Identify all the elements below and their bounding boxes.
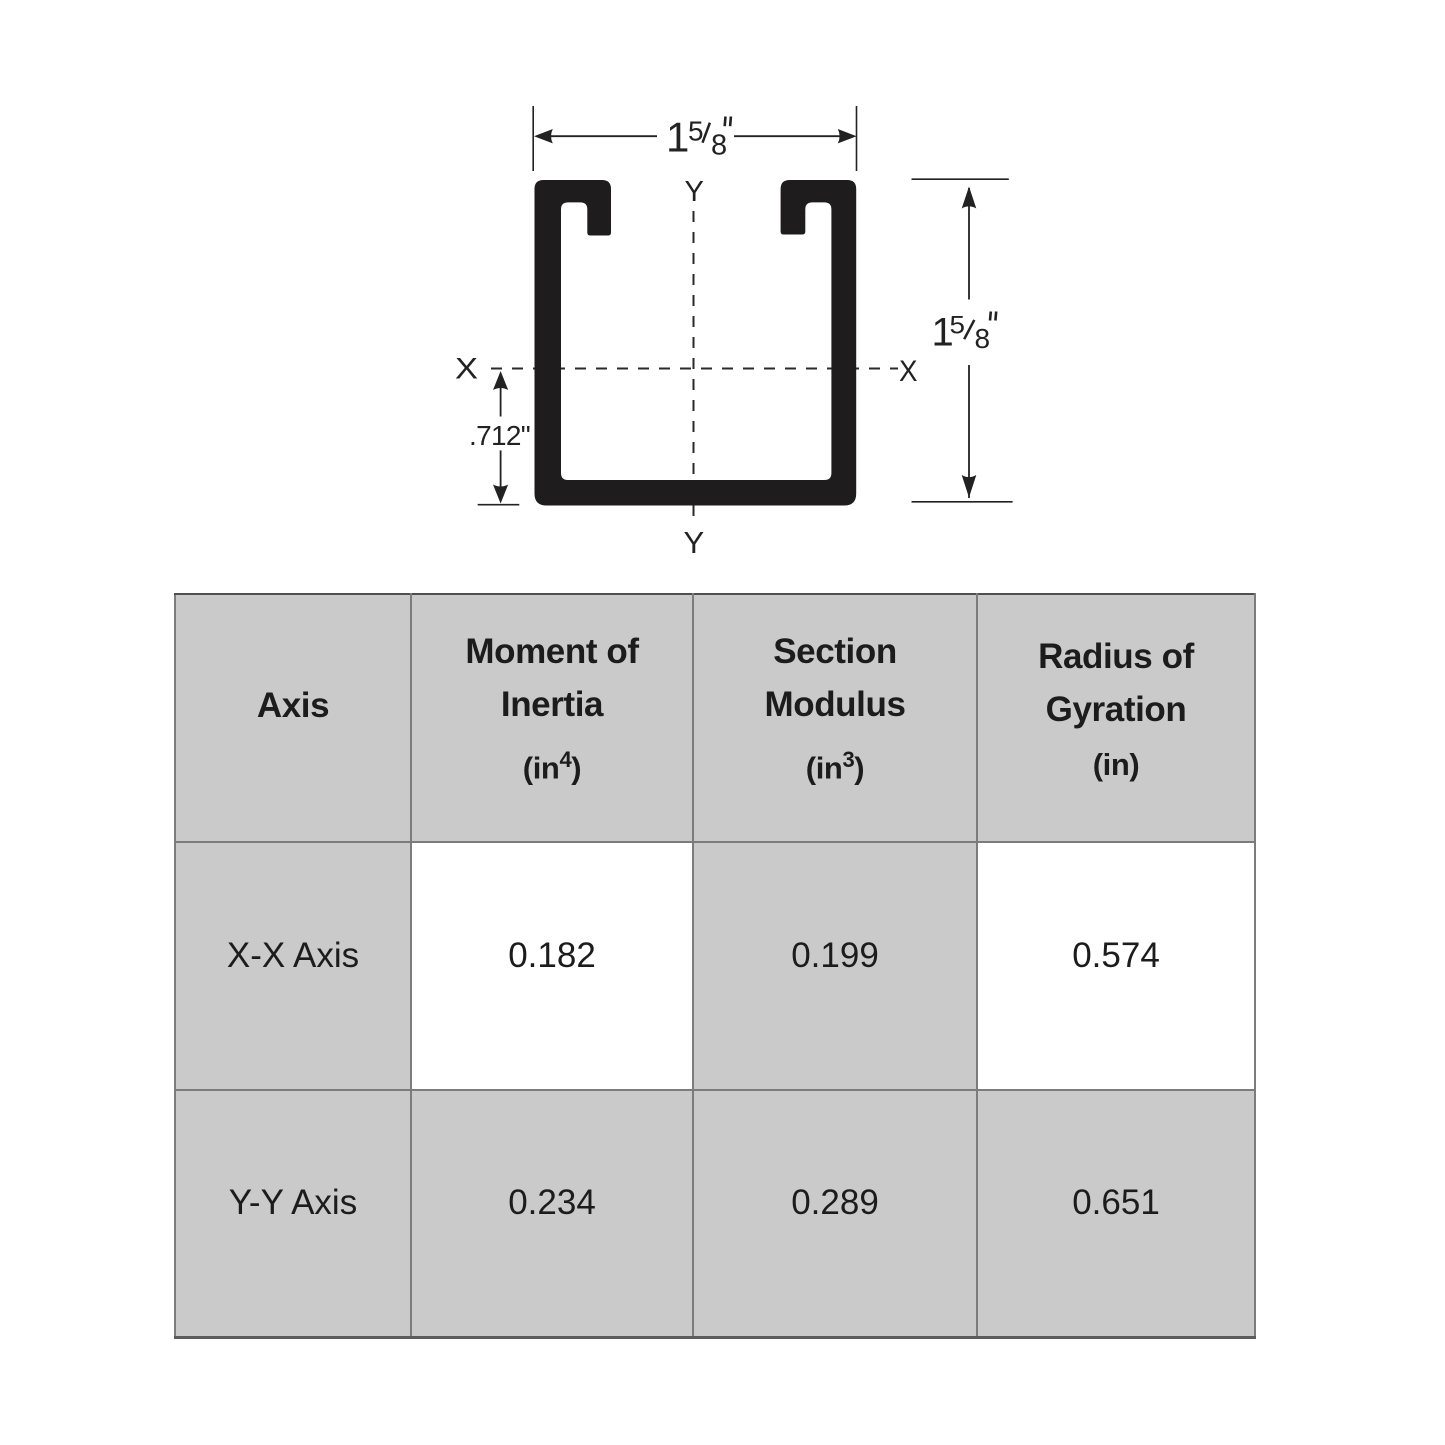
svg-text:.712": .712" — [469, 420, 530, 451]
svg-text:5: 5 — [688, 116, 704, 147]
svg-text:8: 8 — [975, 323, 991, 354]
svg-text:X: X — [455, 352, 478, 385]
svg-text:1: 1 — [666, 114, 689, 161]
svg-text:X: X — [899, 355, 918, 388]
svg-text:5: 5 — [950, 312, 966, 340]
svg-text:8: 8 — [711, 130, 727, 162]
svg-text:Y: Y — [684, 525, 705, 560]
svg-text:Y: Y — [685, 176, 704, 208]
